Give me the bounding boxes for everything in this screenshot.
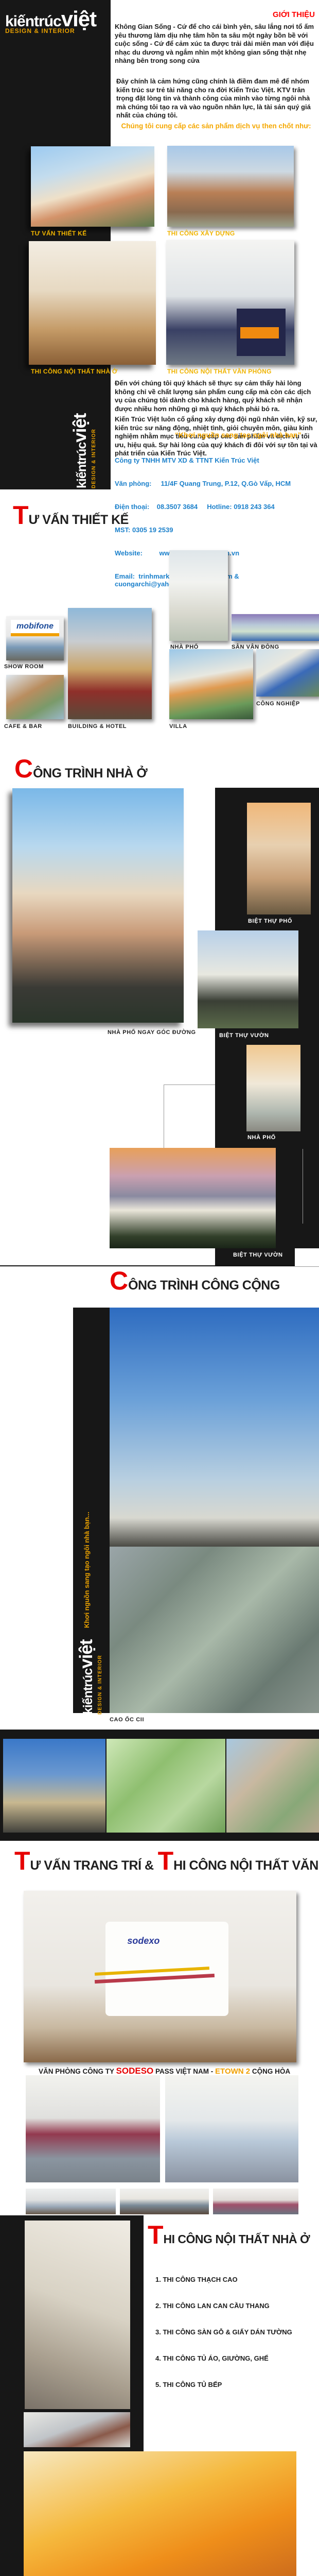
housing-biet-thu-vuon-photo-1 (198, 930, 298, 1028)
heading-rest: ÔNG TRÌNH CÔNG CỘNG (128, 1278, 280, 1293)
section-heading-design: T Ư VẤN THIẾT KẾ (13, 505, 129, 528)
office-room-photo-3 (26, 2189, 116, 2214)
connector-line-3 (303, 1149, 303, 1224)
vertical-brand-logo-cii: kiếntrúcviệt DESIGN & INTERIOR (77, 1627, 103, 1715)
intro-bedroom-photo (29, 241, 156, 365)
vertical-brand-name1: kiếntrúc (81, 1669, 95, 1715)
heading-rest: ÔNG TRÌNH NHÀ Ở (33, 766, 147, 781)
section-heading-home-interior: T HI CÔNG NỘI THẤT NHÀ Ở (148, 2225, 310, 2246)
brand-logo: kiếntrúcviệt DESIGN & INTERIOR (5, 8, 96, 34)
design-showroom-photo: mobifone (6, 616, 64, 660)
mobifone-logo-text: mobifone (16, 622, 54, 631)
intro-heading: GIỚI THIỆU (221, 10, 315, 19)
strip-aerial-campus-photo (226, 1739, 319, 1833)
vertical-slogan: Khơi nguồn sang tạo ngôi nhà bạn... (82, 1517, 92, 1628)
mobifone-signboard: mobifone (11, 620, 59, 636)
housing-corner-villa-photo (12, 788, 184, 1023)
design-label-industry: CÔNG NGHIỆP (256, 701, 300, 707)
sodexo-caption: VĂN PHÒNG CÔNG TY SODESO PASS VIỆT NAM -… (39, 2066, 290, 2076)
intro-quote: “Khơi nguồn sang tạo ngôi nhà bạn” (175, 431, 302, 439)
intro-paragraph-1: Không Gian Sống - Cứ để cho cái bình yên… (115, 23, 317, 65)
orange-bedroom-photo (24, 2451, 296, 2576)
cii-tower-photo (110, 1308, 319, 1547)
section-divider-line-light (295, 1266, 319, 1267)
intro-caption-home-interior: THI CÔNG NỘI THẤT NHÀ Ở (31, 368, 117, 375)
vertical-slogan-text: Khơi nguồn sang tạo ngôi nhà bạn... (83, 1512, 91, 1628)
section-heading-office: T Ư VẤN TRANG TRÍ & T HI CÔNG NỘI THẤT V… (14, 1851, 319, 1873)
intro-caption-construction: THI CÔNG XÂY DỰNG (167, 230, 235, 237)
living-room-aerial-photo (24, 2412, 130, 2447)
intro-construction-photo (167, 146, 294, 227)
vertical-brand-name1: kiếntrúc (75, 443, 89, 488)
design-label-building-hotel: BUILDING & HOTEL (68, 723, 127, 730)
heading-rest-2: HI CÔNG NỘI THẤT VĂN PHÒNG (173, 1858, 319, 1873)
connector-line-2 (164, 1084, 164, 1148)
service-item-5: 5. THI CÔNG TỦ BẾP (155, 2380, 292, 2389)
caption-post: CỘNG HÒA (250, 2067, 290, 2075)
heading-rest: Ư VẤN THIẾT KẾ (29, 513, 129, 528)
heading-initial: T (148, 2225, 164, 2245)
vertical-brand-name2: việt (76, 1639, 96, 1668)
intro-caption-design: TƯ VẤN THIẾT KẾ (31, 230, 86, 237)
cii-caption: CAO ỐC CII (110, 1717, 144, 1723)
heading-initial-2: T (158, 1851, 174, 1871)
design-label-cafe-bar: CAFE & BAR (4, 723, 42, 730)
strip-aerial-green-photo (107, 1739, 225, 1833)
sodexo-reception-photo: sodexo (24, 1891, 296, 2062)
design-industry-photo (256, 649, 319, 697)
office-room-photo-5 (213, 2189, 298, 2214)
housing-label-biet-thu-vuon-1: BIỆT THỰ VƯỜN (219, 1032, 269, 1039)
cii-black-sidebar: Khơi nguồn sang tạo ngôi nhà bạn... kiến… (73, 1308, 110, 1713)
caption-brand: SODESO (116, 2066, 154, 2076)
design-label-showroom: SHOW ROOM (4, 664, 44, 670)
kientrucviet-brochure-page: kiếntrúcviệt DESIGN & INTERIOR kiếntrúcv… (0, 0, 319, 2576)
service-item-2: 2. THI CÔNG LAN CAN CẦU THANG (155, 2301, 292, 2310)
intro-caption-office-interior: THI CÔNG NỘI THẤT VĂN PHÒNG (167, 368, 272, 375)
design-villa-photo (169, 649, 253, 719)
housing-nha-pho-photo (246, 1045, 300, 1131)
sodexo-logo-text: sodexo (127, 1936, 159, 1946)
heading-rest-1: Ư VẤN TRANG TRÍ & (30, 1858, 154, 1873)
section-heading-public: C ÔNG TRÌNH CÔNG CỘNG (110, 1270, 280, 1293)
design-nha-pho-photo (169, 550, 228, 641)
housing-label-biet-thu-vuon-2: BIỆT THỰ VƯỜN (233, 1252, 283, 1258)
vertical-brand-name2: việt (70, 413, 90, 442)
office-room-photo-1 (26, 2075, 160, 2182)
heading-initial-1: T (14, 1851, 30, 1871)
service-item-3: 3. THI CÔNG SÀN GỖ & GIẤY DÁN TƯỜNG (155, 2328, 292, 2336)
service-item-1: 1. THI CÔNG THẠCH CAO (155, 2275, 292, 2284)
contact-mst: MST: 0305 19 2539 (115, 526, 319, 534)
vertical-brand-tagline: DESIGN & INTERIOR (97, 1655, 103, 1715)
contact-phone: Điện thoại: 08.3507 3684 Hotline: 0918 2… (115, 503, 319, 511)
section-divider-line (0, 1265, 295, 1266)
cii-aerial-photo (110, 1547, 319, 1713)
strip-building-photo (3, 1739, 105, 1833)
intro-services-caption: Chúng tôi cung cấp các sản phẩm dịch vụ … (114, 122, 318, 130)
caption-pre: VĂN PHÒNG CÔNG TY (39, 2067, 116, 2075)
connector-line-1 (164, 1084, 215, 1085)
intro-paragraph-2: Đây chính là cảm hứng cũng chính là điềm… (116, 77, 317, 120)
design-cafe-bar-photo (6, 675, 64, 719)
heading-rest: HI CÔNG NỘI THẤT NHÀ Ở (164, 2232, 310, 2246)
heading-initial: C (110, 1270, 128, 1291)
office-room-photo-4 (120, 2189, 209, 2214)
office-room-photo-2 (165, 2075, 298, 2182)
design-label-villa: VILLA (169, 723, 187, 730)
intro-office-photo (166, 240, 294, 365)
design-building-hotel-photo (68, 608, 152, 719)
section-heading-housing: C ÔNG TRÌNH NHÀ Ở (14, 758, 147, 781)
home-interior-service-list: 1. THI CÔNG THẠCH CAO 2. THI CÔNG LAN CA… (155, 2258, 292, 2406)
vertical-brand-logo-top: kiếntrúcviệt DESIGN & INTERIOR (71, 401, 97, 488)
housing-label-biet-thu-pho: BIỆT THỰ PHỐ (248, 918, 292, 924)
heading-initial: T (13, 505, 29, 526)
intro-paragraph-3: Đến với chúng tôi quý khách sẽ thực sự c… (115, 379, 318, 413)
intro-villa-render-photo (31, 146, 154, 227)
design-stadium-photo (232, 614, 319, 641)
housing-caption-main: NHÀ PHỐ NGAY GÓC ĐƯỜNG (108, 1029, 196, 1036)
staircase-photo (25, 2221, 130, 2409)
housing-biet-thu-vuon-photo-2 (110, 1148, 276, 1248)
housing-biet-thu-pho-photo (247, 803, 311, 914)
housing-label-nha-pho: NHÀ PHỐ (247, 1134, 276, 1141)
contact-office: Văn phòng: 11/4F Quang Trung, P.12, Q.Gò… (115, 480, 319, 487)
caption-tower: ETOWN 2 (215, 2067, 250, 2076)
service-item-4: 4. THI CÔNG TỦ ÁO, GIƯỜNG, GHẾ (155, 2354, 292, 2363)
reception-orange-accent (240, 327, 279, 338)
vertical-brand-tagline: DESIGN & INTERIOR (91, 429, 97, 488)
caption-mid: PASS VIỆT NAM - (153, 2067, 215, 2075)
contact-company: Công ty TNHH MTV XD & TTNT Kiến Trúc Việ… (115, 456, 319, 464)
heading-initial: C (14, 758, 33, 779)
